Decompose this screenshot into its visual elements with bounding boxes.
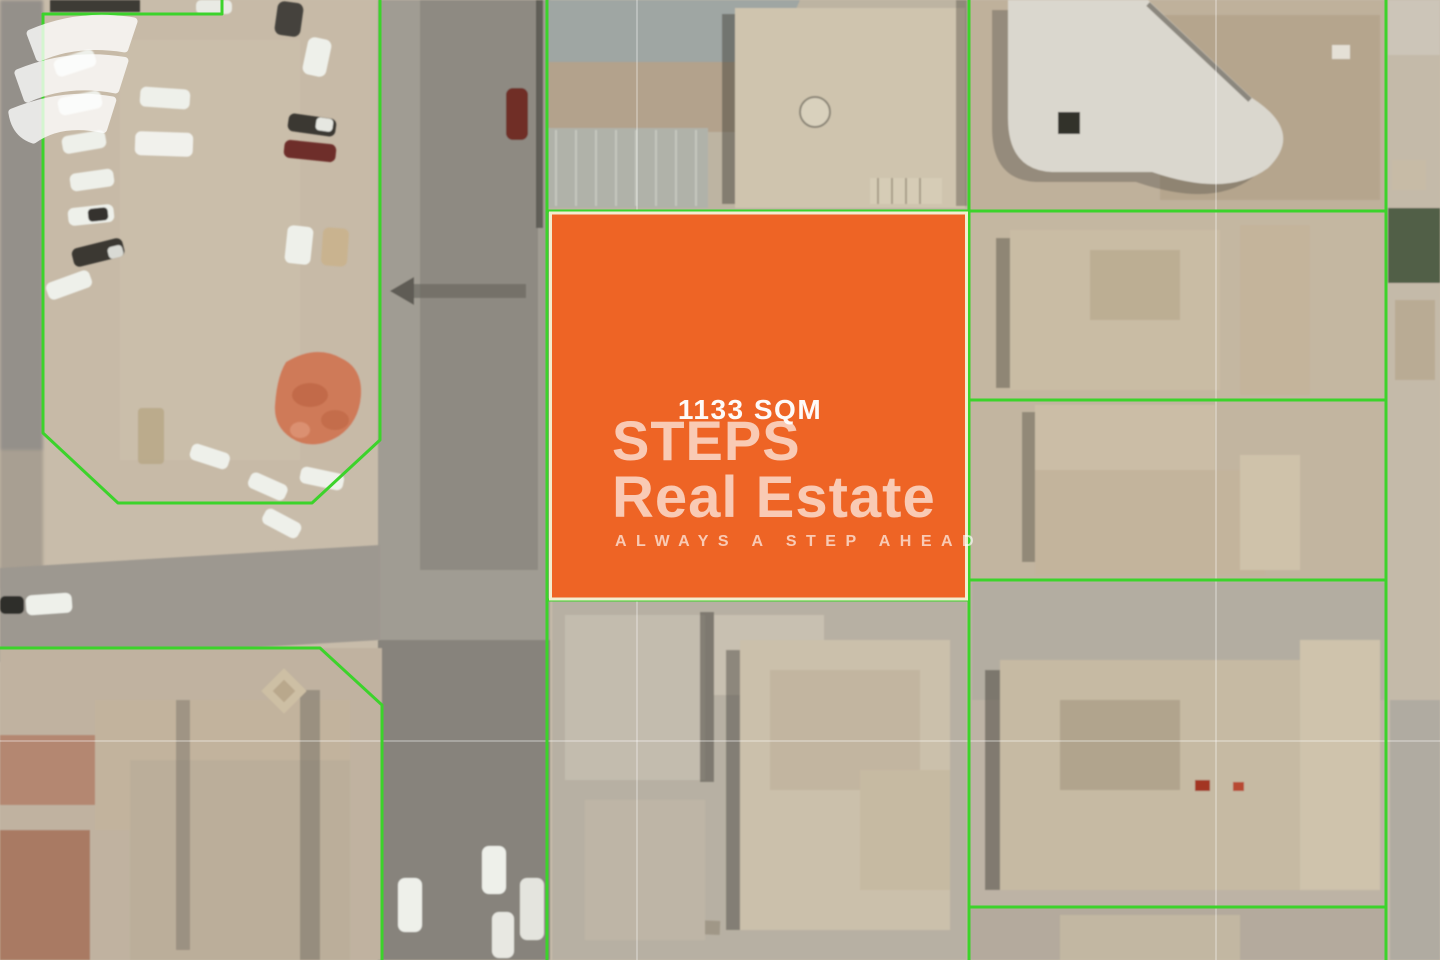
buildings-top-right bbox=[969, 0, 1386, 211]
buildings-bottom-center bbox=[552, 600, 967, 960]
brand-suffix: Real Estate bbox=[612, 469, 936, 527]
buildings-bottom-left bbox=[0, 648, 382, 960]
car bbox=[0, 596, 24, 614]
main-road bbox=[378, 0, 550, 960]
car bbox=[398, 878, 422, 932]
roof-dome bbox=[800, 97, 830, 127]
car bbox=[25, 592, 72, 615]
side-alley bbox=[1386, 0, 1440, 960]
red-roof bbox=[0, 735, 95, 805]
guardrail bbox=[536, 0, 543, 228]
buildings-top-center bbox=[546, 0, 969, 211]
buildings-right bbox=[969, 211, 1386, 960]
brand-name: STEPS bbox=[612, 413, 801, 469]
green-patch bbox=[1388, 208, 1440, 283]
brand-tagline: ALWAYS A STEP AHEAD bbox=[615, 534, 983, 550]
steps-swoosh-icon bbox=[0, 0, 152, 158]
red-roof bbox=[0, 830, 90, 960]
car bbox=[482, 846, 506, 894]
car bbox=[506, 88, 528, 140]
satellite-map-image: 1133 SQM STEPS Real Estate ALWAYS A STEP… bbox=[0, 0, 1440, 960]
car bbox=[492, 912, 514, 958]
car bbox=[520, 878, 544, 940]
red-object bbox=[1195, 780, 1210, 791]
